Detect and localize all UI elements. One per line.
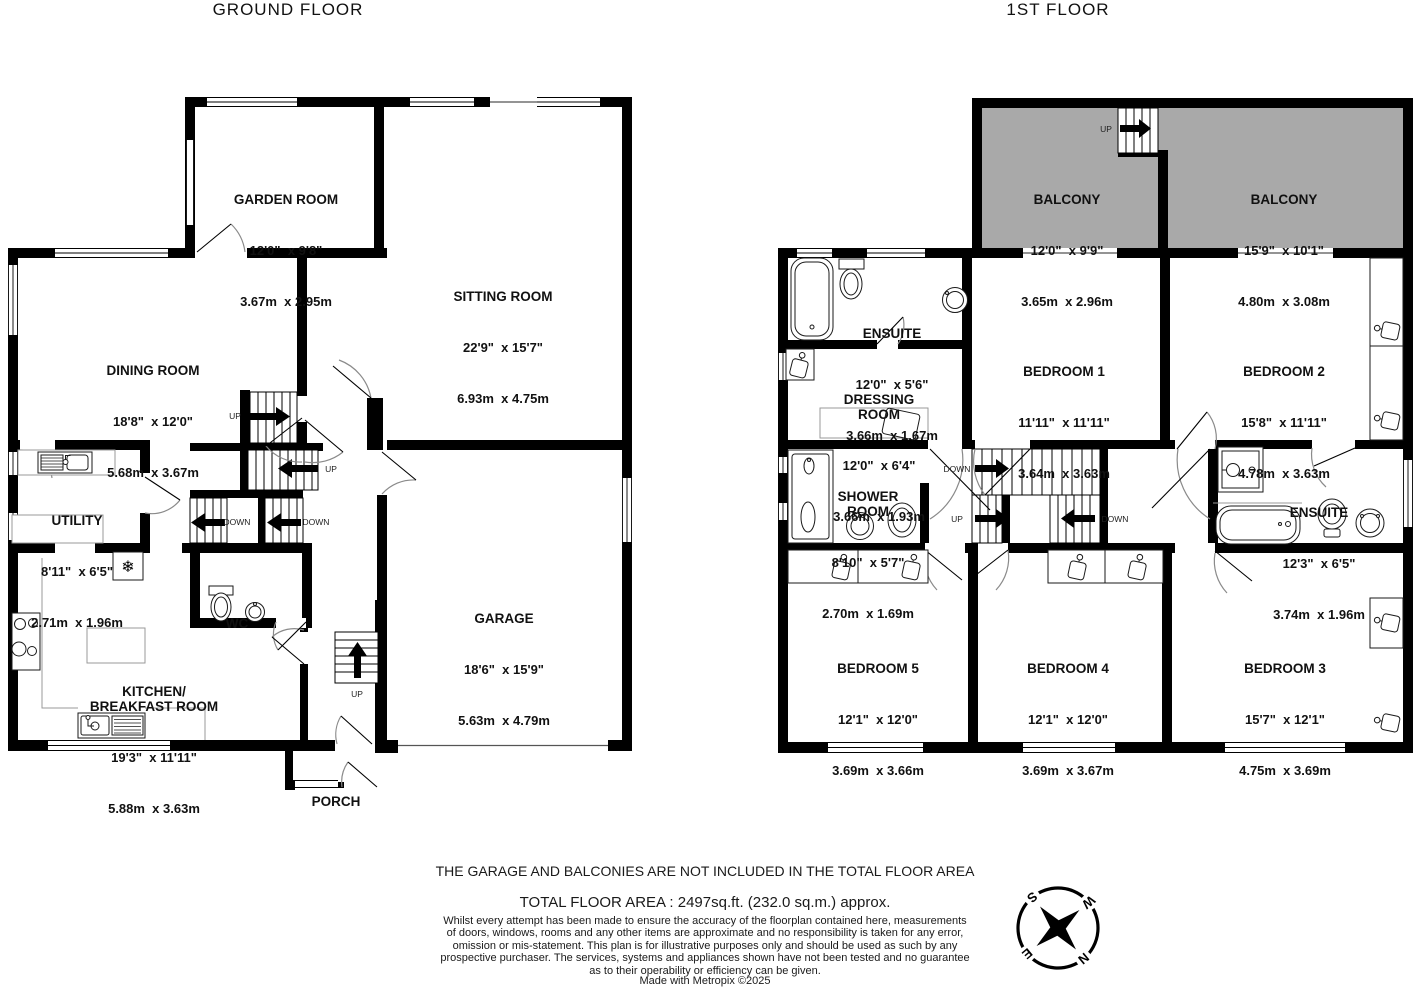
room-label-garage: GARAGE 18'6" x 15'9" 5.63m x 4.79m [458, 575, 550, 747]
room-label-utility: UTILITY 8'11" x 6'5" 2.71m x 1.96m [31, 477, 123, 649]
first-floor-title: 1ST FLOOR [1006, 0, 1109, 20]
basin-icon [943, 288, 968, 313]
room-label-bedroom-5: BEDROOM 5 12'1" x 12'0" 3.69m x 3.66m [832, 625, 924, 797]
room-label-kitchen: KITCHEN/ BREAKFAST ROOM 19'3" x 11'11" 5… [90, 648, 218, 835]
exclusion-note: THE GARAGE AND BALCONIES ARE NOT INCLUDE… [436, 863, 975, 879]
room-label-sitting-room: SITTING ROOM 22'9" x 15'7" 6.93m x 4.75m [454, 253, 553, 425]
stair-label-up: UP [351, 689, 363, 699]
credit-line: Made with Metropix ©2025 [639, 975, 770, 987]
room-label-ensuite-2: ENSUITE 12'3" x 6'5" 3.74m x 1.96m [1273, 469, 1365, 641]
room-label-balcony-2: BALCONY 15'9" x 10'1" 4.80m x 3.08m [1238, 156, 1330, 328]
total-floor-area: TOTAL FLOOR AREA : 2497sq.ft. (232.0 sq.… [520, 894, 891, 911]
svg-text:❄: ❄ [121, 559, 134, 576]
stair-label-down: DOWN [1102, 514, 1129, 524]
ground-floor-title: GROUND FLOOR [213, 0, 364, 20]
room-label-porch: PORCH [312, 758, 361, 827]
compass-rose: N E S W [990, 860, 1125, 992]
floorplan-page: ❄ [0, 0, 1416, 992]
room-label-balcony-1: BALCONY 12'0" x 9'9" 3.65m x 2.96m [1021, 156, 1113, 328]
stair-label-down: DOWN [303, 517, 330, 527]
stair-label-up: UP [951, 514, 963, 524]
room-label-garden-room: GARDEN ROOM 12'0" x 9'8" 3.67m x 2.95m [234, 156, 338, 328]
room-dim-metric: 3.67m x 2.95m [234, 295, 338, 310]
ground-stairs [190, 392, 378, 683]
room-label-shower-room: SHOWER ROOM 8'10" x 5'7" 2.70m x 1.69m [822, 453, 914, 640]
room-label-bedroom-3: BEDROOM 3 15'7" x 12'1" 4.75m x 3.69m [1239, 625, 1331, 797]
utility-sink [18, 450, 115, 475]
stair-label-down: DOWN [944, 464, 971, 474]
stair-label-down: DOWN [224, 517, 251, 527]
bath-icon [791, 258, 833, 340]
stair-label-up: UP [325, 464, 337, 474]
room-label-bedroom-1: BEDROOM 1 11'11" x 11'11" 3.64m x 3.63m [1018, 328, 1110, 500]
room-label-wc: WC [226, 580, 249, 649]
floorplan-drawing: ❄ [0, 0, 1416, 992]
room-label-bedroom-4: BEDROOM 4 12'1" x 12'0" 3.69m x 3.67m [1022, 625, 1114, 797]
room-name: GARDEN ROOM [234, 192, 338, 207]
disclaimer-text: Whilst every attempt has been made to en… [440, 915, 969, 977]
room-dim-imperial: 12'0" x 9'8" [234, 244, 338, 259]
stair-label-up: UP [229, 411, 241, 421]
room-label-dining-room: DINING ROOM 18'8" x 12'0" 5.68m x 3.67m [107, 327, 200, 499]
wardrobe-icon [786, 349, 814, 380]
stair-label-up: UP [1100, 124, 1112, 134]
